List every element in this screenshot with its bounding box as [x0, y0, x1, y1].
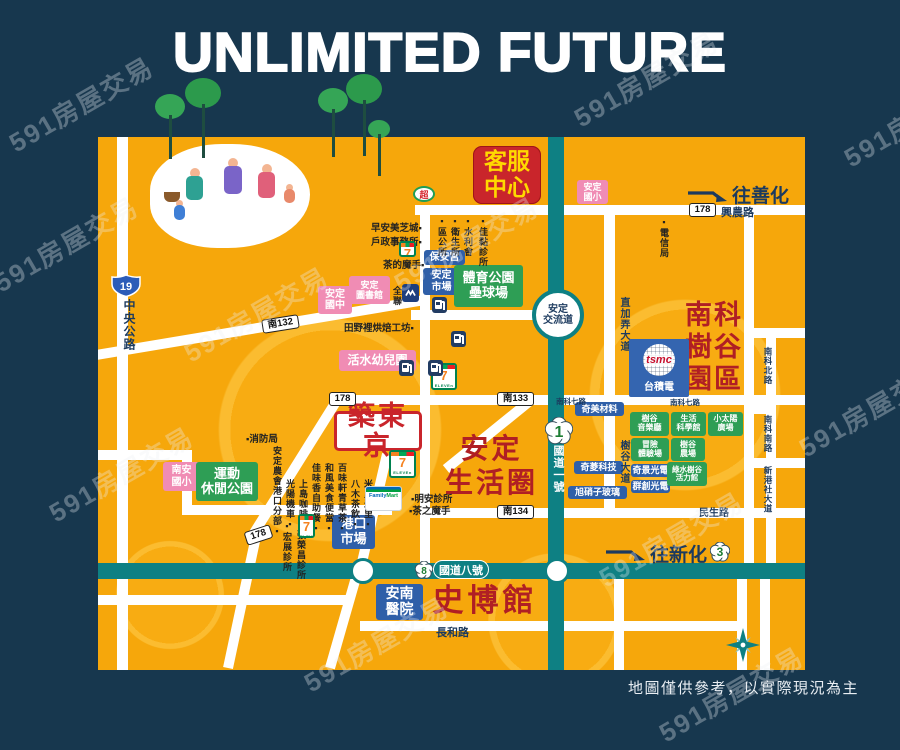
person-icon	[258, 164, 275, 198]
route-19-shield: 19	[111, 274, 141, 297]
road-name-label: 民生路	[699, 504, 729, 519]
poi-label: 和風美食便當▪	[323, 463, 336, 534]
map-disclaimer: 地圖僅供參考，以實際現況為主	[628, 677, 859, 698]
sports-park-badge: 體育公園壘球場	[454, 265, 523, 307]
poi-label: ▪消防局	[246, 431, 278, 445]
gas-station-icon	[399, 360, 414, 376]
adventure-field-badge: 冒險體驗場	[631, 438, 669, 461]
asahi-glass-badge: 旭硝子玻璃	[568, 486, 627, 499]
innolux-badge: 群創光電	[631, 480, 670, 493]
road-name-label: 南科北路	[762, 347, 774, 385]
freeway8-name-pill: 國道八號	[433, 560, 489, 579]
anding-living-circle-label: 安定生活圈	[434, 432, 549, 500]
svg-text:3: 3	[717, 545, 724, 559]
anding-elementary-badge: 安定國小	[577, 180, 608, 204]
road-name-label: 樹谷大道	[616, 440, 631, 484]
poi-label: 田野裡烘焙工坊▪	[344, 320, 414, 334]
freeway-8-badge: 8	[415, 561, 433, 579]
vitality-hall-badge: 綠水樹谷活力館	[667, 462, 707, 486]
nanke-shugu-park-label: 南科樹谷園區	[684, 299, 744, 395]
road-name-label: 中央公路	[121, 299, 138, 351]
annan-hospital-badge: 安南醫院	[376, 584, 423, 620]
tsmc-block: tsmc台積電	[629, 339, 689, 397]
anding-interchange-badge: 安定交流道	[532, 289, 584, 341]
tree-icon	[185, 78, 221, 158]
road-number-badge: 178	[689, 203, 716, 217]
road-number-badge: 南132	[261, 314, 300, 334]
pxmart-icon	[402, 284, 419, 302]
freeway-1-badge: 1	[545, 417, 573, 445]
road-name-label: 長和路	[436, 624, 469, 640]
road-number-badge: 南133	[497, 392, 534, 406]
little-sun-plaza-badge: 小太陽廣場	[708, 412, 743, 436]
himax-badge: 奇景光電	[631, 464, 670, 477]
poi-label: ▪衛生所	[449, 216, 462, 257]
shugu-concert-hall-badge: 樹谷音樂廳	[630, 412, 669, 436]
road-name-label: 南科七路	[556, 396, 586, 407]
road-name-label: 南科七路	[670, 397, 700, 408]
svg-text:1: 1	[555, 424, 564, 441]
gas-station-icon	[428, 360, 443, 376]
road-name-label: 新港社大道	[762, 466, 774, 514]
road-name-label: 南科南路	[762, 415, 774, 453]
poi-label: ▪佳黏診所	[477, 216, 490, 267]
tree-icon	[368, 120, 390, 176]
road-number-badge: 178	[243, 524, 273, 546]
poi-label: ▪茶之魔手	[409, 503, 450, 517]
poi-label: ▪水利會	[462, 216, 475, 257]
history-museum-label: 史博館	[420, 584, 550, 618]
picnic-illustration	[150, 144, 310, 248]
map-labels: 客服中心安定國小安定國中安定圖書館活水幼兒園南安國小保安宮安定市場港口市場安南醫…	[0, 0, 900, 715]
anding-library-badge: 安定圖書館	[349, 276, 390, 304]
to-xinhua-arrow: 往新化	[604, 540, 707, 567]
leisure-park-badge: 運動休閒公園	[196, 462, 258, 501]
seven-eleven-icon: 7ELEVEn	[389, 450, 416, 478]
road-name-label: 國道一號	[550, 445, 566, 493]
gas-station-icon	[432, 297, 447, 313]
poi-label: 早安美芝城▪	[371, 220, 422, 234]
familymart-icon: FamilyMart	[365, 486, 402, 511]
freeway-3-badge: 3	[710, 542, 730, 562]
seven-eleven-icon: 7	[399, 241, 416, 257]
service-center-badge: 客服中心	[473, 146, 541, 204]
poi-label: 八木茶飲▪	[349, 479, 362, 530]
life-science-museum-badge: 生活科學館	[671, 412, 706, 436]
svg-text:19: 19	[120, 281, 132, 293]
compass-icon	[726, 628, 760, 662]
shugu-farm-badge: 樹谷農場	[671, 438, 705, 461]
child-icon	[284, 184, 295, 203]
road-number-badge: 南134	[497, 505, 534, 519]
tree-icon	[155, 94, 185, 159]
svg-text:8: 8	[421, 566, 427, 577]
page-title: UNLIMITED FUTURE	[0, 20, 900, 84]
seven-eleven-icon: 7ELEVEn	[298, 514, 315, 538]
supermarket-icon: 超	[413, 186, 435, 202]
person-icon	[224, 158, 242, 194]
poi-label: ▪電信局	[658, 217, 671, 258]
tree-icon	[318, 88, 348, 157]
anding-junior-high-badge: 安定國中	[318, 286, 352, 314]
child-icon	[174, 200, 185, 220]
project-badge: 築東京	[334, 411, 422, 451]
road-number-badge: 178	[329, 392, 356, 406]
poi-label: 茶的魔手▪	[383, 257, 424, 271]
poi-label: 百味軒青草茶▪	[336, 463, 349, 534]
person-icon	[186, 168, 203, 200]
nanan-elementary-badge: 南安國小	[163, 462, 200, 491]
poi-label: ▪宏展診所	[281, 521, 294, 572]
poi-label: ▪區公所	[436, 216, 449, 257]
gas-station-icon	[451, 331, 466, 347]
